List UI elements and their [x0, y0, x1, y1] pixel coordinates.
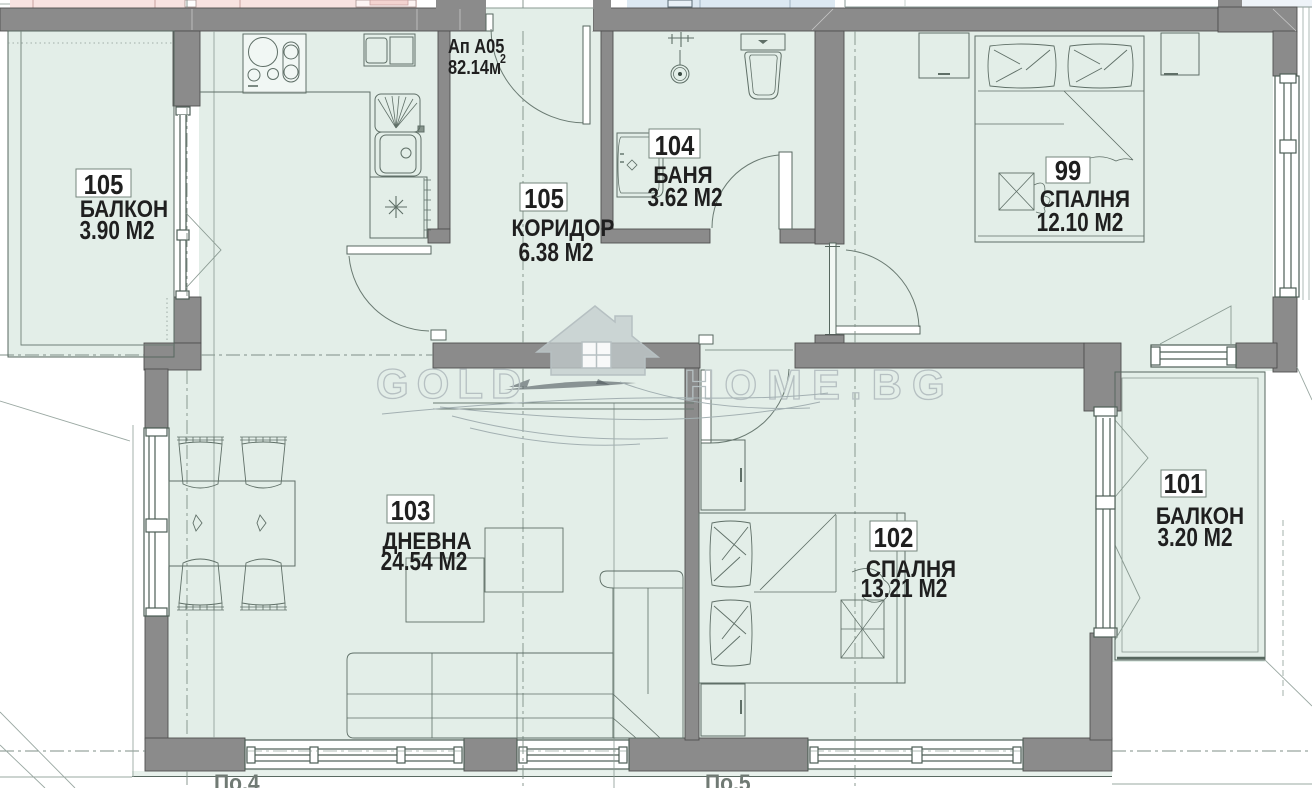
svg-text:6.38 М2: 6.38 М2 — [518, 238, 593, 267]
svg-text:2: 2 — [500, 51, 506, 66]
svg-text:По.5: По.5 — [705, 770, 751, 788]
svg-text:24.54 М2: 24.54 М2 — [381, 547, 468, 576]
svg-text:99: 99 — [1055, 154, 1081, 186]
svg-text:104: 104 — [655, 129, 695, 161]
svg-text:82.14м: 82.14м — [448, 55, 501, 78]
svg-text:3.20 М2: 3.20 М2 — [1157, 523, 1232, 552]
svg-text:103: 103 — [391, 494, 431, 526]
svg-text:101: 101 — [1164, 467, 1204, 499]
svg-text:105: 105 — [524, 182, 564, 214]
svg-text:Ап А05: Ап А05 — [448, 34, 504, 57]
svg-text:По.4: По.4 — [214, 770, 260, 788]
svg-text:GOLD: GOLD — [376, 360, 529, 407]
svg-text:3.62 М2: 3.62 М2 — [647, 183, 722, 212]
svg-text:13.21 М2: 13.21 М2 — [861, 574, 948, 603]
svg-text:12.10 М2: 12.10 М2 — [1037, 208, 1124, 237]
svg-text:102: 102 — [874, 521, 914, 553]
svg-text:3.90 М2: 3.90 М2 — [79, 216, 154, 245]
svg-text:HOME.BG: HOME.BG — [684, 361, 955, 408]
